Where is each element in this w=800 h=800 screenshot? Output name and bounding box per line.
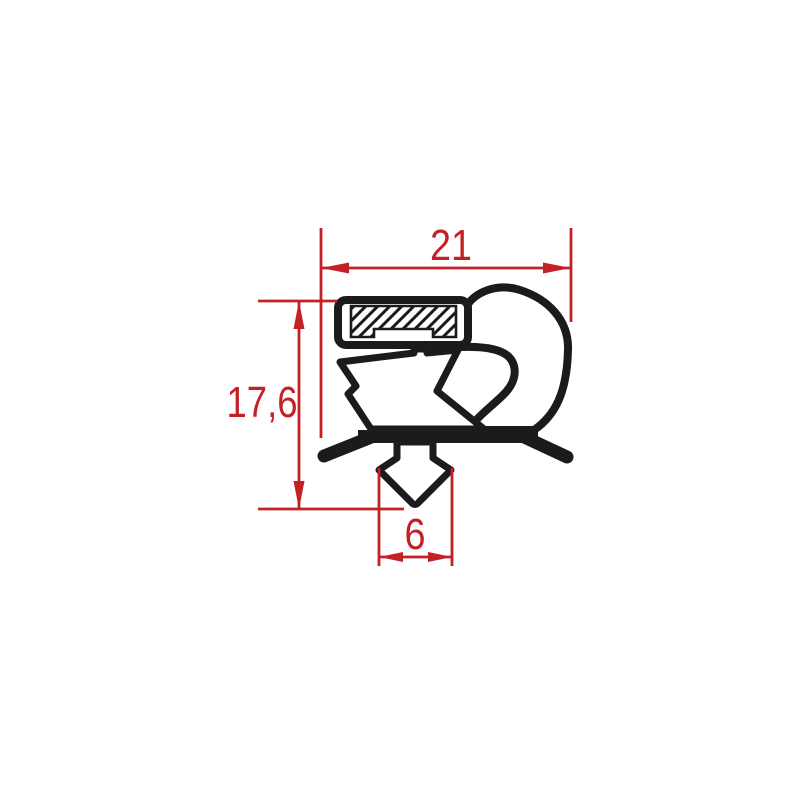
height-arrow-bottom xyxy=(294,481,305,509)
dart-width-dimension-label: 6 xyxy=(405,510,426,559)
height-dimension-label: 17,6 xyxy=(227,378,298,427)
gasket-profile-drawing: 21 17,6 6 xyxy=(0,0,800,800)
gasket-profile xyxy=(324,287,568,504)
width-dimension-label: 21 xyxy=(430,221,472,270)
width-arrow-right xyxy=(543,263,571,274)
flange-left-wing xyxy=(324,436,374,456)
technical-drawing-canvas: 21 17,6 6 xyxy=(0,0,800,800)
height-arrow-top xyxy=(294,301,305,329)
flange-right-wing xyxy=(522,436,567,457)
balloon-chamber xyxy=(460,287,568,430)
bellows xyxy=(340,349,484,429)
dart-arrow-left xyxy=(379,552,403,562)
push-in-dart xyxy=(379,442,451,505)
width-arrow-left xyxy=(321,263,349,274)
dart-arrow-right xyxy=(428,552,452,562)
